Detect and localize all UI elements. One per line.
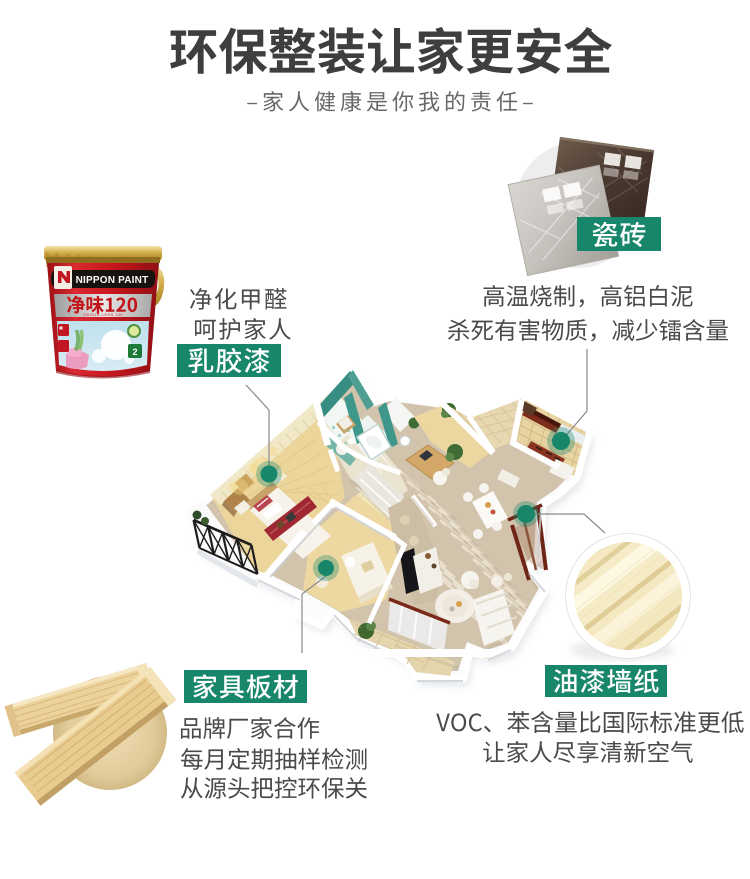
svg-text:2: 2 xyxy=(132,347,137,357)
svg-text:ODOUR-LESS 120: ODOUR-LESS 120 xyxy=(83,312,123,317)
svg-text:NIPPON PAINT: NIPPON PAINT xyxy=(76,275,149,286)
